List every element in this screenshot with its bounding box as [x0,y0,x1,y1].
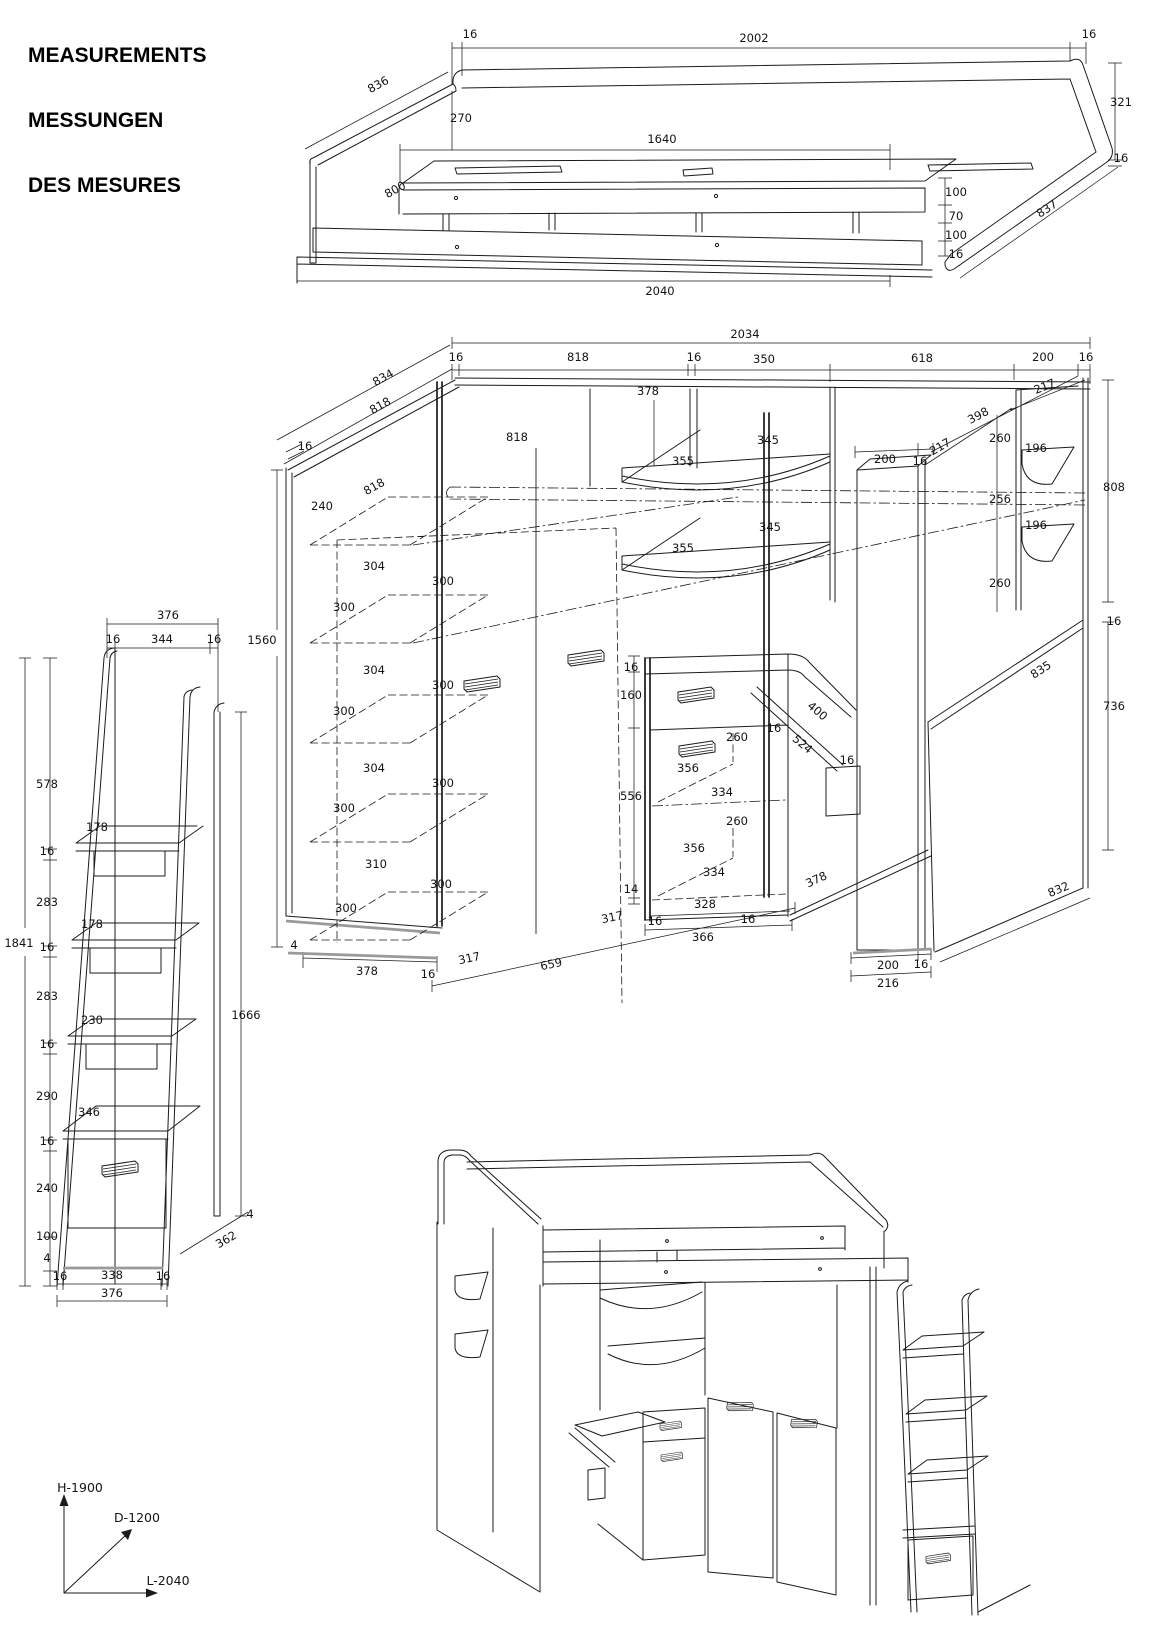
dim-label: 70 [949,209,964,223]
dim-label: 290 [36,1089,58,1103]
dim-label: 818 [567,350,589,364]
dim-label: 16 [1114,151,1129,165]
dim-label: 16 [40,844,55,858]
dim-label: 356 [677,761,699,775]
dim-label: 818 [367,394,393,417]
dim-label: 200 [877,958,899,972]
technical-drawing-canvas: MEASUREMENTS MESSUNGEN DES MESURES 16200… [0,0,1154,1628]
dim-label: 398 [965,404,991,427]
dim-label: 16 [1082,27,1097,41]
title-block: MEASUREMENTS MESSUNGEN DES MESURES [28,44,207,197]
bed-base-rails [297,212,932,283]
dim-label: 16 [421,967,436,981]
dim-label: 334 [703,865,725,879]
dim-label: 808 [1103,480,1125,494]
dim-label: 328 [694,897,716,911]
title-de: MESSUNGEN [28,109,163,132]
dim-label: 2040 [645,284,674,298]
dim-label: 260 [726,814,748,828]
dim-label: 378 [637,384,659,398]
drawer-handle-icon [678,687,714,703]
dim-label: 217 [1032,376,1058,397]
dim-label: 16 [949,247,964,261]
dim-label: 16 [40,1037,55,1051]
axis-legend: H-1900 D-1200 L-2040 [57,1480,189,1598]
dim-label: 16 [1107,614,1122,628]
dim-label: 356 [683,841,705,855]
screw-hole [455,245,458,248]
depth-axis-label: D-1200 [114,1510,160,1525]
dim-label: 818 [506,430,528,444]
dim-label: 837 [1034,197,1060,221]
dim-label: 345 [759,520,781,534]
dim-label: 16 [914,957,929,971]
dim-label: 818 [361,475,387,498]
dim-label: 240 [311,499,333,513]
dim-label: 338 [101,1268,123,1282]
screw-dot [821,1237,824,1240]
drawer-handle-icon [102,1161,138,1177]
dim-label: 16 [648,914,663,928]
walls-shelves-desk-3d [437,1222,837,1595]
dim-label: 100 [36,1229,58,1243]
dim-label: 300 [333,704,355,718]
dim-label: 800 [382,178,408,201]
dim-label: 4 [43,1251,50,1265]
floor-edges-gray [286,921,931,958]
dim-label: 344 [151,632,173,646]
dim-label: 160 [620,688,642,702]
dim-label: 578 [36,777,58,791]
dim-label: 378 [803,868,829,890]
ladder-view: 3761634416578162831628316290162401004184… [4,608,260,1307]
dim-label: 16 [40,1134,55,1148]
dim-label: 16 [449,350,464,364]
bed-back-and-headboard [310,59,1113,270]
dim-label: 16 [840,753,855,767]
right-panels [857,455,1083,952]
screw-dot [665,1271,668,1274]
dim-label: 300 [333,801,355,815]
dim-label: 200 [874,452,896,466]
dim-label: 321 [1110,95,1132,109]
length-axis-label: L-2040 [146,1573,189,1588]
dim-label: 4 [246,1207,253,1221]
dim-label: 14 [624,882,639,896]
dim-label: 317 [457,949,481,967]
door-handle-icon [726,1399,753,1414]
screw-dot [819,1268,822,1271]
dim-label: 345 [757,433,779,447]
dim-label: 300 [430,877,452,891]
bed-top-3d [438,1150,908,1286]
dim-label: 1666 [231,1008,260,1022]
dim-label: 300 [335,901,357,915]
dim-label: 200 [1032,350,1054,364]
dim-label: 2034 [730,327,759,341]
dim-label: 230 [81,1013,103,1027]
ladder-3d [870,1267,1030,1615]
dim-label: 659 [539,955,563,973]
dim-label: 260 [989,431,1011,445]
bed-dimension-lines [297,42,1122,287]
ladder-dimension-labels: 3761634416578162831628316290162401004184… [4,608,260,1300]
drawer-handle-icon [661,1452,683,1462]
dim-label: 836 [365,73,391,96]
dim-label: 16 [106,632,121,646]
dim-label: 240 [36,1181,58,1195]
dim-label: 304 [363,761,385,775]
dim-label: 16 [207,632,222,646]
length-axis-arrow-icon [146,1589,158,1598]
dim-label: 378 [356,964,378,978]
screw-hole [714,194,717,197]
dim-label: 835 [1028,658,1054,682]
dim-label: 260 [726,730,748,744]
bed-frame-view: 1620021683627016408003211610070100168372… [297,27,1132,298]
title-en: MEASUREMENTS [28,44,207,67]
hanging-rail-hidden [413,487,1085,806]
dim-label: 16 [298,439,313,453]
title-fr: DES MESURES [28,174,181,197]
dim-label: 2002 [739,31,768,45]
dim-label: 618 [911,351,933,365]
dim-label: 16 [53,1269,68,1283]
door-handle-icon [464,676,500,692]
dim-label: 270 [450,111,472,125]
dim-label: 524 [790,732,816,757]
drawer-handle-icon [926,1553,950,1564]
screw-dot [666,1240,669,1243]
desk-unit [645,654,931,921]
dim-label: 736 [1103,699,1125,713]
bed-platform [399,159,1033,214]
dim-label: 16 [741,912,756,926]
dim-label: 355 [672,454,694,468]
dim-label: 216 [877,976,899,990]
dim-label: 1640 [647,132,676,146]
dim-label: 310 [365,857,387,871]
door-handle-icon [790,1416,817,1431]
dim-label: 256 [989,492,1011,506]
dim-label: 1841 [4,936,33,950]
corner-shelves [622,430,830,578]
dim-label: 366 [692,930,714,944]
dim-label: 16 [463,27,478,41]
dim-label: 16 [40,940,55,954]
dim-label: 16 [156,1269,171,1283]
dim-label: 217 [927,435,953,458]
dim-label: 100 [945,228,967,242]
dim-label: 300 [432,776,454,790]
height-axis-arrow-icon [60,1494,69,1506]
dim-label: 1560 [247,633,276,647]
dim-label: 300 [432,574,454,588]
dim-label: 16 [1079,350,1094,364]
dim-label: 376 [101,1286,123,1300]
dim-label: 300 [432,678,454,692]
dim-label: 178 [81,917,103,931]
dim-label: 304 [363,559,385,573]
unit-divider-edges [437,382,769,926]
assembled-3d-view [437,1150,1030,1615]
wardrobe-unit-view: 2034168181635061820016834818378818168182… [247,327,1125,1003]
dim-label: 16 [624,660,639,674]
dim-label: 304 [363,663,385,677]
dim-label: 16 [687,350,702,364]
dim-label: 355 [672,541,694,555]
dim-label: 346 [78,1105,100,1119]
dim-label: 16 [913,454,928,468]
screw-hole [454,196,457,199]
dim-label: 350 [753,352,775,366]
unit-dimension-labels: 2034168181635061820016834818378818168182… [247,327,1125,990]
screw-hole [715,243,718,246]
dim-label: 283 [36,989,58,1003]
ladder-rails [57,648,224,1286]
height-axis-label: H-1900 [57,1480,103,1495]
dim-label: 260 [989,576,1011,590]
dim-label: 376 [157,608,179,622]
dim-label: 300 [333,600,355,614]
dim-label: 196 [1025,518,1047,532]
dim-label: 16 [767,721,782,735]
dim-label: 556 [620,789,642,803]
dim-label: 178 [86,820,108,834]
dim-label: 4 [290,938,297,952]
dim-label: 832 [1046,879,1072,900]
bed-dimension-labels: 1620021683627016408003211610070100168372… [365,27,1132,298]
dim-label: 100 [945,185,967,199]
drawer-handle-icon [679,741,715,757]
dim-label: 283 [36,895,58,909]
door-handle-icon [568,650,604,666]
dim-label: 834 [370,366,396,389]
drawing-page: MEASUREMENTS MESSUNGEN DES MESURES 16200… [0,0,1154,1628]
dim-label: 400 [805,699,831,724]
dim-label: 334 [711,785,733,799]
dim-label: 196 [1025,441,1047,455]
